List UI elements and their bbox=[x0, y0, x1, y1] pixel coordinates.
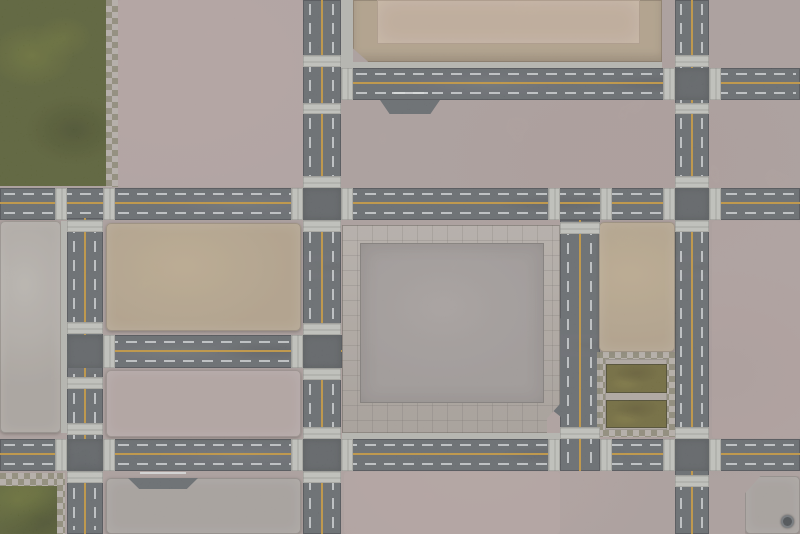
crosswalk bbox=[103, 439, 115, 471]
grass-field-top-left bbox=[0, 0, 106, 186]
road-top-right-horizontal bbox=[352, 68, 800, 100]
crosswalk bbox=[675, 55, 709, 67]
crosswalk bbox=[675, 427, 709, 439]
game-mat bbox=[0, 0, 800, 534]
intersection bbox=[303, 439, 341, 471]
crosswalk bbox=[67, 220, 103, 232]
checker-edge-strip bbox=[57, 473, 65, 534]
concrete-patch-top-left bbox=[118, 0, 303, 187]
crosswalk bbox=[675, 103, 709, 114]
crosswalk bbox=[303, 176, 341, 188]
checker-edge-strip bbox=[106, 0, 118, 187]
road-left-vertical bbox=[67, 218, 103, 534]
intersection bbox=[303, 188, 341, 220]
intersection bbox=[67, 335, 103, 368]
layby-notch bbox=[380, 100, 440, 114]
crosswalk bbox=[303, 103, 341, 114]
crosswalk bbox=[548, 439, 560, 471]
crosswalk bbox=[341, 439, 353, 471]
crosswalk bbox=[548, 188, 560, 220]
crosswalk bbox=[67, 423, 103, 435]
plaza-inner-concrete bbox=[360, 243, 544, 403]
crosswalk bbox=[303, 368, 341, 380]
crosswalk bbox=[103, 188, 115, 220]
grass-bed-top bbox=[606, 364, 667, 393]
maker-logo-badge bbox=[781, 515, 794, 528]
raised-platform-step bbox=[377, 0, 640, 44]
crosswalk bbox=[303, 471, 341, 483]
crosswalk bbox=[341, 68, 353, 100]
sidewalk-strip bbox=[341, 0, 353, 68]
crosswalk bbox=[67, 322, 103, 334]
crosswalk bbox=[663, 68, 675, 100]
concrete-slab-left bbox=[0, 221, 61, 433]
checker-edge-strip bbox=[0, 473, 65, 486]
crosswalk bbox=[303, 220, 341, 232]
crosswalk bbox=[103, 335, 115, 368]
crosswalk bbox=[709, 188, 721, 220]
concrete-slab-tan-right bbox=[599, 222, 675, 352]
crosswalk bbox=[560, 427, 600, 439]
intersection bbox=[67, 439, 103, 471]
crosswalk bbox=[55, 439, 67, 471]
crosswalk bbox=[303, 427, 341, 439]
intersection bbox=[675, 439, 709, 471]
crosswalk bbox=[663, 188, 675, 220]
intersection bbox=[303, 335, 341, 368]
crosswalk bbox=[291, 188, 303, 220]
crosswalk bbox=[291, 439, 303, 471]
give-way-line bbox=[140, 472, 186, 474]
grass-field-bottom-left bbox=[0, 486, 57, 534]
crosswalk bbox=[67, 377, 103, 389]
crosswalk bbox=[600, 188, 612, 220]
concrete-patch-mid-right bbox=[712, 221, 800, 438]
crosswalk bbox=[303, 323, 341, 335]
crosswalk bbox=[675, 220, 709, 232]
concrete-slab-bottom-left bbox=[106, 478, 301, 534]
concrete-slab-pink-left bbox=[106, 370, 301, 437]
crosswalk bbox=[663, 439, 675, 471]
crosswalk bbox=[560, 222, 600, 234]
crosswalk bbox=[55, 188, 67, 220]
sidewalk-strip bbox=[353, 62, 662, 68]
give-way-line bbox=[392, 92, 428, 94]
crosswalk bbox=[600, 439, 612, 471]
crosswalk bbox=[341, 188, 353, 220]
crosswalk bbox=[709, 68, 721, 100]
concrete-slab-tan-left bbox=[106, 223, 301, 331]
grass-bed-bottom bbox=[606, 400, 667, 428]
crosswalk bbox=[291, 335, 303, 368]
intersection bbox=[675, 188, 709, 220]
crosswalk bbox=[709, 439, 721, 471]
sidewalk-strip bbox=[342, 433, 560, 439]
concrete-patch-bottom-center bbox=[344, 472, 560, 534]
layby-notch bbox=[128, 478, 198, 489]
crosswalk bbox=[675, 176, 709, 188]
crosswalk bbox=[67, 471, 103, 483]
crosswalk bbox=[675, 475, 709, 487]
intersection bbox=[675, 68, 709, 100]
crosswalk bbox=[303, 55, 341, 67]
